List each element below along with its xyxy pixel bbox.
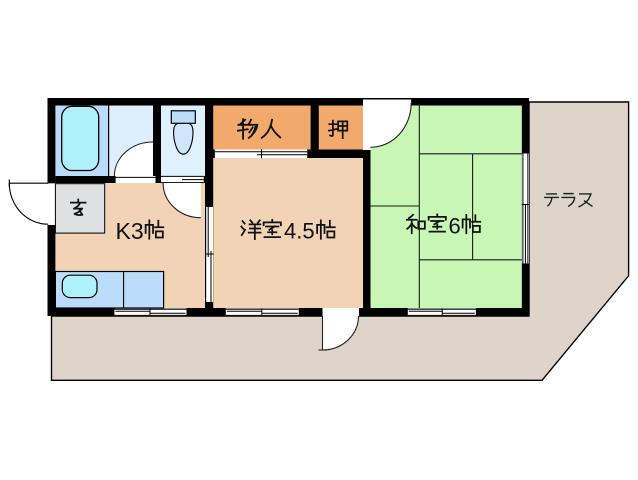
svg-text:6: 6 <box>449 214 461 239</box>
svg-text:4.5: 4.5 <box>284 219 315 244</box>
svg-text:K3: K3 <box>116 218 144 244</box>
